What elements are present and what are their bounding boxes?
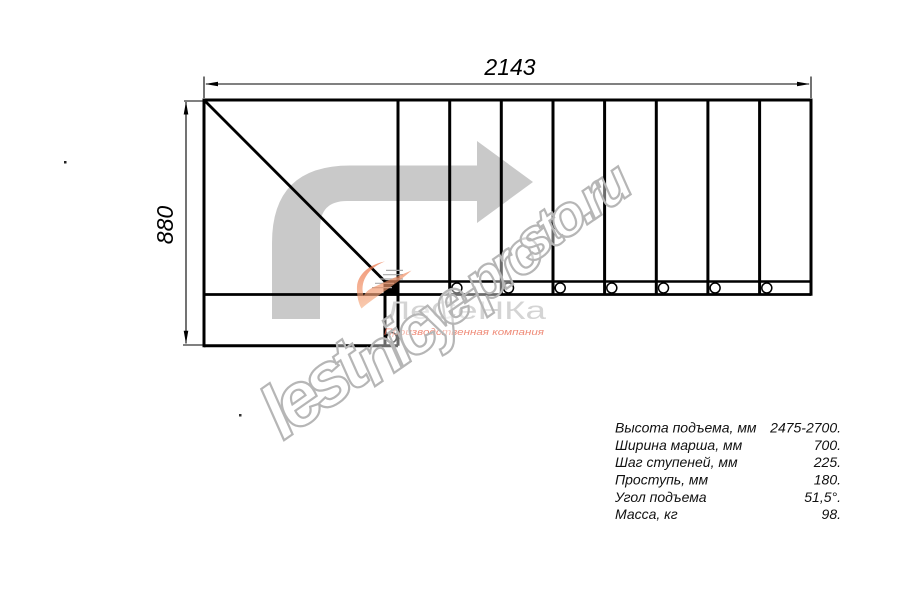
svg-text:Высота подъема, мм: Высота подъема, мм (615, 420, 757, 436)
svg-text:51,5°.: 51,5°. (804, 489, 841, 505)
svg-text:Шаг ступеней, мм: Шаг ступеней, мм (615, 454, 738, 470)
svg-text:Ширина марша, мм: Ширина марша, мм (615, 437, 743, 453)
svg-text:180.: 180. (814, 472, 841, 488)
svg-text:2475-2700.: 2475-2700. (769, 420, 841, 436)
svg-text:880: 880 (152, 206, 178, 245)
svg-text:Угол подъема: Угол подъема (614, 489, 707, 505)
svg-text:700.: 700. (814, 437, 841, 453)
svg-text:98.: 98. (822, 506, 841, 522)
svg-text:2143: 2143 (483, 54, 535, 80)
svg-text:Проступь, мм: Проступь, мм (615, 472, 709, 488)
svg-text:225.: 225. (813, 454, 841, 470)
svg-text:Масса, кг: Масса, кг (615, 506, 678, 522)
